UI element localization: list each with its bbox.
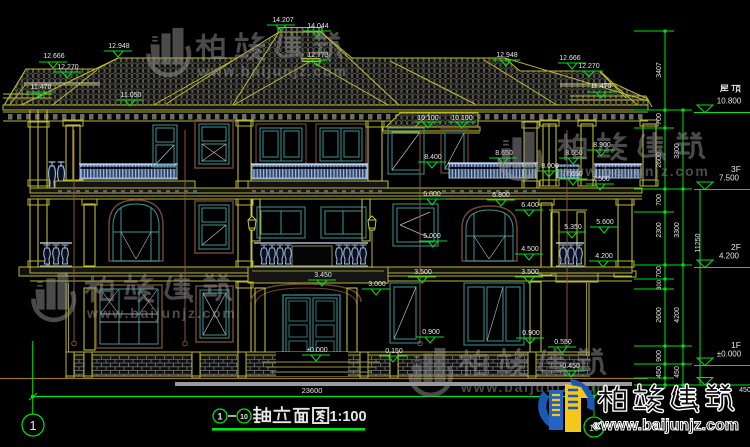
svg-text:www.baijunjz.com: www.baijunjz.com bbox=[86, 305, 237, 321]
svg-text:5.600: 5.600 bbox=[596, 219, 614, 226]
svg-text:12.666: 12.666 bbox=[43, 53, 65, 60]
svg-text:14.207: 14.207 bbox=[272, 17, 294, 24]
svg-text:450: 450 bbox=[739, 387, 750, 394]
svg-text:1: 1 bbox=[217, 412, 222, 422]
svg-text:11.050: 11.050 bbox=[121, 92, 142, 99]
svg-text:8.000: 8.000 bbox=[541, 163, 559, 170]
svg-text:3407: 3407 bbox=[656, 62, 663, 78]
svg-text:10.800: 10.800 bbox=[717, 97, 742, 106]
svg-text:7.500: 7.500 bbox=[719, 174, 740, 183]
svg-text:1F: 1F bbox=[731, 340, 741, 350]
svg-text:www.baijunjz.com: www.baijunjz.com bbox=[197, 63, 348, 79]
svg-text:5.000: 5.000 bbox=[423, 233, 441, 240]
svg-text:12.666: 12.666 bbox=[559, 55, 581, 62]
svg-text:10.100: 10.100 bbox=[417, 115, 439, 122]
svg-text:12.948: 12.948 bbox=[108, 43, 130, 50]
svg-text:11.470: 11.470 bbox=[31, 84, 52, 91]
svg-text:±0.000: ±0.000 bbox=[306, 347, 327, 354]
svg-text:300: 300 bbox=[657, 279, 663, 290]
svg-text:14.044: 14.044 bbox=[307, 23, 329, 30]
svg-text:2600: 2600 bbox=[656, 307, 663, 323]
svg-text:10.100: 10.100 bbox=[451, 115, 473, 122]
svg-text:8.400: 8.400 bbox=[424, 154, 442, 161]
svg-text:0.900: 0.900 bbox=[522, 330, 540, 337]
svg-text:6.400: 6.400 bbox=[521, 202, 539, 209]
svg-text:«www.baijunjz.com: «www.baijunjz.com bbox=[592, 417, 739, 434]
svg-text:10: 10 bbox=[240, 414, 248, 421]
svg-text:23600: 23600 bbox=[302, 386, 323, 395]
svg-text:450: 450 bbox=[674, 366, 681, 378]
svg-text:6.800: 6.800 bbox=[423, 191, 441, 198]
svg-text:3F: 3F bbox=[731, 164, 741, 174]
svg-text:±0.000: ±0.000 bbox=[717, 350, 742, 359]
svg-text:12.270: 12.270 bbox=[57, 64, 79, 71]
svg-text:3.000: 3.000 bbox=[368, 281, 386, 288]
svg-text:3.500: 3.500 bbox=[414, 269, 432, 276]
svg-text:0.550: 0.550 bbox=[554, 339, 572, 346]
svg-text:4200: 4200 bbox=[674, 307, 681, 323]
svg-text:1: 1 bbox=[29, 418, 36, 433]
svg-text:www.baijunjz.com: www.baijunjz.com bbox=[559, 163, 710, 179]
svg-text:5.350: 5.350 bbox=[564, 224, 582, 231]
svg-text:3300: 3300 bbox=[674, 222, 681, 238]
svg-text:11250: 11250 bbox=[695, 233, 702, 252]
svg-text:4.200: 4.200 bbox=[595, 253, 613, 260]
svg-text:4.200: 4.200 bbox=[719, 252, 740, 261]
svg-text:700: 700 bbox=[656, 113, 663, 125]
svg-text:700: 700 bbox=[656, 266, 663, 278]
svg-text:450: 450 bbox=[656, 366, 663, 378]
svg-text:11.470: 11.470 bbox=[591, 83, 612, 90]
svg-text:3.450: 3.450 bbox=[314, 272, 332, 279]
svg-text:900: 900 bbox=[656, 350, 663, 362]
svg-text:12.270: 12.270 bbox=[578, 63, 600, 70]
svg-text:4.500: 4.500 bbox=[521, 246, 539, 253]
svg-text:2F: 2F bbox=[731, 242, 741, 252]
svg-text:12.948: 12.948 bbox=[496, 52, 518, 59]
svg-text:700: 700 bbox=[656, 194, 663, 206]
svg-text:0.150: 0.150 bbox=[385, 348, 403, 355]
svg-text:3.500: 3.500 bbox=[521, 269, 539, 276]
svg-text:2300: 2300 bbox=[656, 222, 663, 238]
svg-text:0.900: 0.900 bbox=[422, 329, 440, 336]
svg-text:1:100: 1:100 bbox=[329, 409, 366, 425]
svg-text:6.800: 6.800 bbox=[492, 192, 510, 199]
